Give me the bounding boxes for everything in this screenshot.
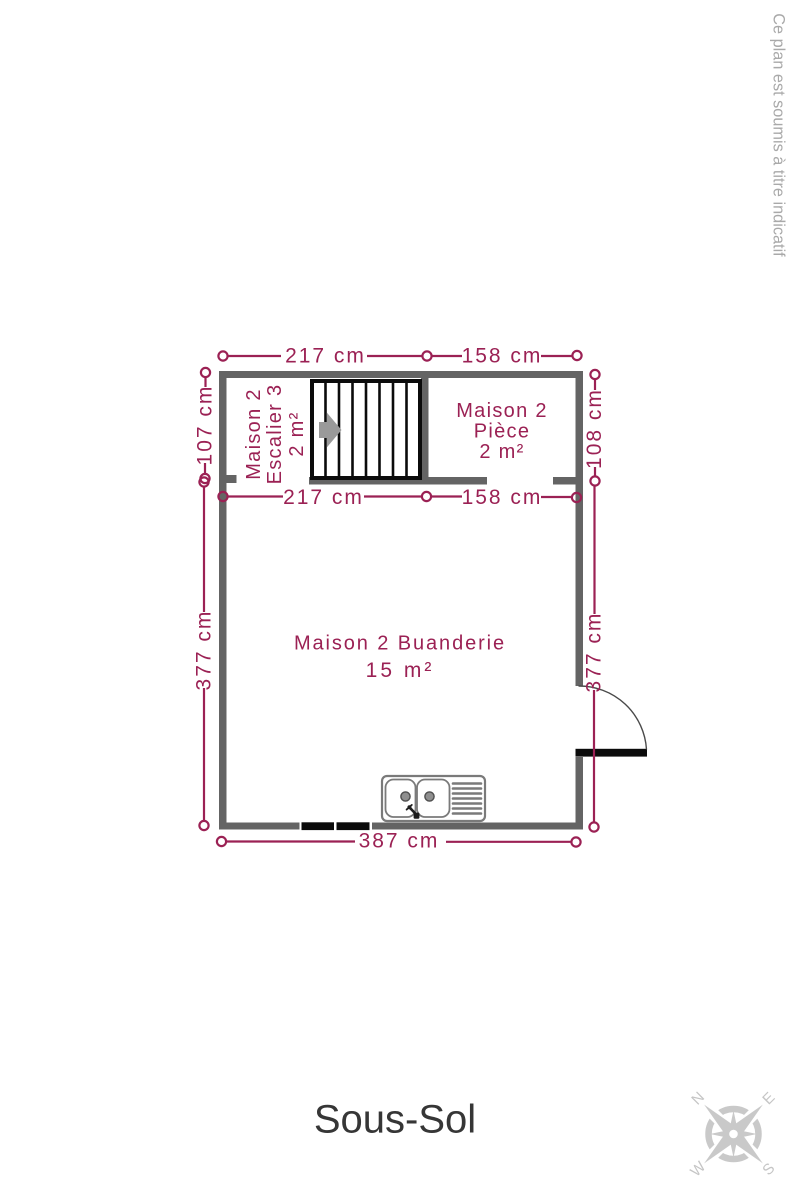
svg-text:217 cm: 217 cm <box>285 345 366 368</box>
svg-text:Escalier 3: Escalier 3 <box>264 384 286 485</box>
svg-text:387 cm: 387 cm <box>359 830 440 853</box>
svg-text:108 cm: 108 cm <box>583 388 606 469</box>
svg-text:107 cm: 107 cm <box>194 385 217 466</box>
svg-text:2 m²: 2 m² <box>286 411 308 456</box>
svg-text:Sous-Sol: Sous-Sol <box>314 1098 476 1142</box>
svg-text:Pièce: Pièce <box>474 421 531 443</box>
svg-text:377 cm: 377 cm <box>583 612 606 693</box>
svg-text:Maison 2: Maison 2 <box>456 400 548 422</box>
svg-text:S: S <box>759 1160 778 1179</box>
svg-text:Maison 2: Maison 2 <box>243 388 265 480</box>
svg-text:377 cm: 377 cm <box>193 610 216 691</box>
svg-text:2 m²: 2 m² <box>479 441 524 463</box>
svg-text:217 cm: 217 cm <box>283 486 364 509</box>
svg-text:Ce plan est soumis à titre ind: Ce plan est soumis à titre indicatif <box>770 13 788 257</box>
svg-text:15 m²: 15 m² <box>366 659 435 682</box>
svg-text:Maison 2 Buanderie: Maison 2 Buanderie <box>294 633 506 655</box>
svg-text:158 cm: 158 cm <box>462 345 543 368</box>
svg-text:158 cm: 158 cm <box>462 486 543 509</box>
